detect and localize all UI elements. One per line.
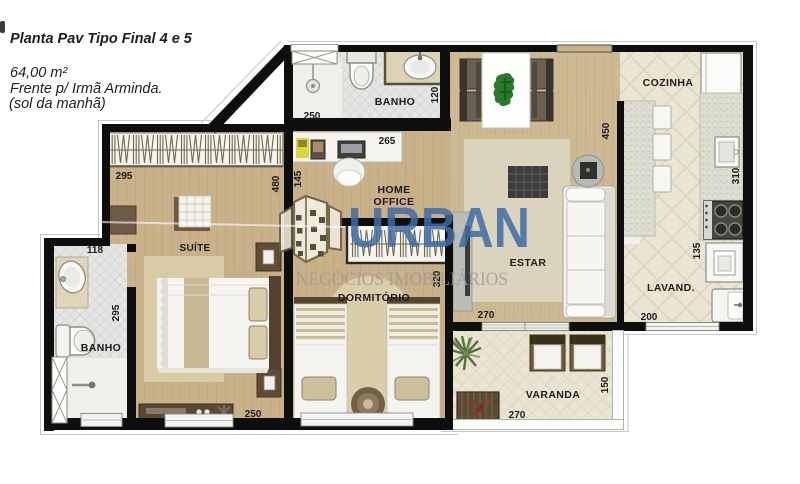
svg-text:COZINHA: COZINHA [643, 77, 694, 89]
svg-text:HOME: HOME [377, 184, 410, 196]
svg-text:295: 295 [111, 304, 122, 321]
svg-text:NEGÓCIOS IMOBILIÁRIOS: NEGÓCIOS IMOBILIÁRIOS [296, 268, 508, 290]
svg-text:270: 270 [509, 410, 526, 421]
svg-text:480: 480 [271, 175, 282, 192]
svg-text:Frente p/ Irmã Arminda.: Frente p/ Irmã Arminda. [10, 81, 163, 97]
svg-text:250: 250 [245, 409, 262, 420]
svg-text:450: 450 [601, 122, 612, 139]
svg-text:SUÍTE: SUÍTE [180, 241, 211, 254]
svg-text:VARANDA: VARANDA [526, 389, 581, 401]
svg-text:118: 118 [87, 245, 104, 256]
svg-text:145: 145 [293, 170, 304, 187]
svg-text:LAVAND.: LAVAND. [647, 282, 695, 294]
svg-text:BANHO: BANHO [375, 96, 416, 108]
svg-text:270: 270 [478, 310, 495, 321]
svg-text:200: 200 [641, 312, 658, 323]
svg-text:120: 120 [430, 86, 441, 103]
svg-text:Planta Pav Tipo Final 4 e 5: Planta Pav Tipo Final 4 e 5 [10, 31, 193, 47]
svg-text:URBAN: URBAN [348, 196, 530, 260]
svg-text:310: 310 [731, 167, 742, 184]
svg-text:295: 295 [116, 171, 133, 182]
svg-text:BANHO: BANHO [81, 342, 122, 354]
svg-text:150: 150 [600, 376, 611, 393]
svg-text:64,00 m²: 64,00 m² [10, 65, 68, 81]
svg-text:(sol da manhã): (sol da manhã) [9, 96, 106, 112]
svg-text:DORMITÓRIO: DORMITÓRIO [338, 291, 410, 304]
svg-text:250: 250 [304, 111, 321, 122]
svg-text:135: 135 [692, 242, 703, 259]
svg-text:265: 265 [379, 136, 396, 147]
